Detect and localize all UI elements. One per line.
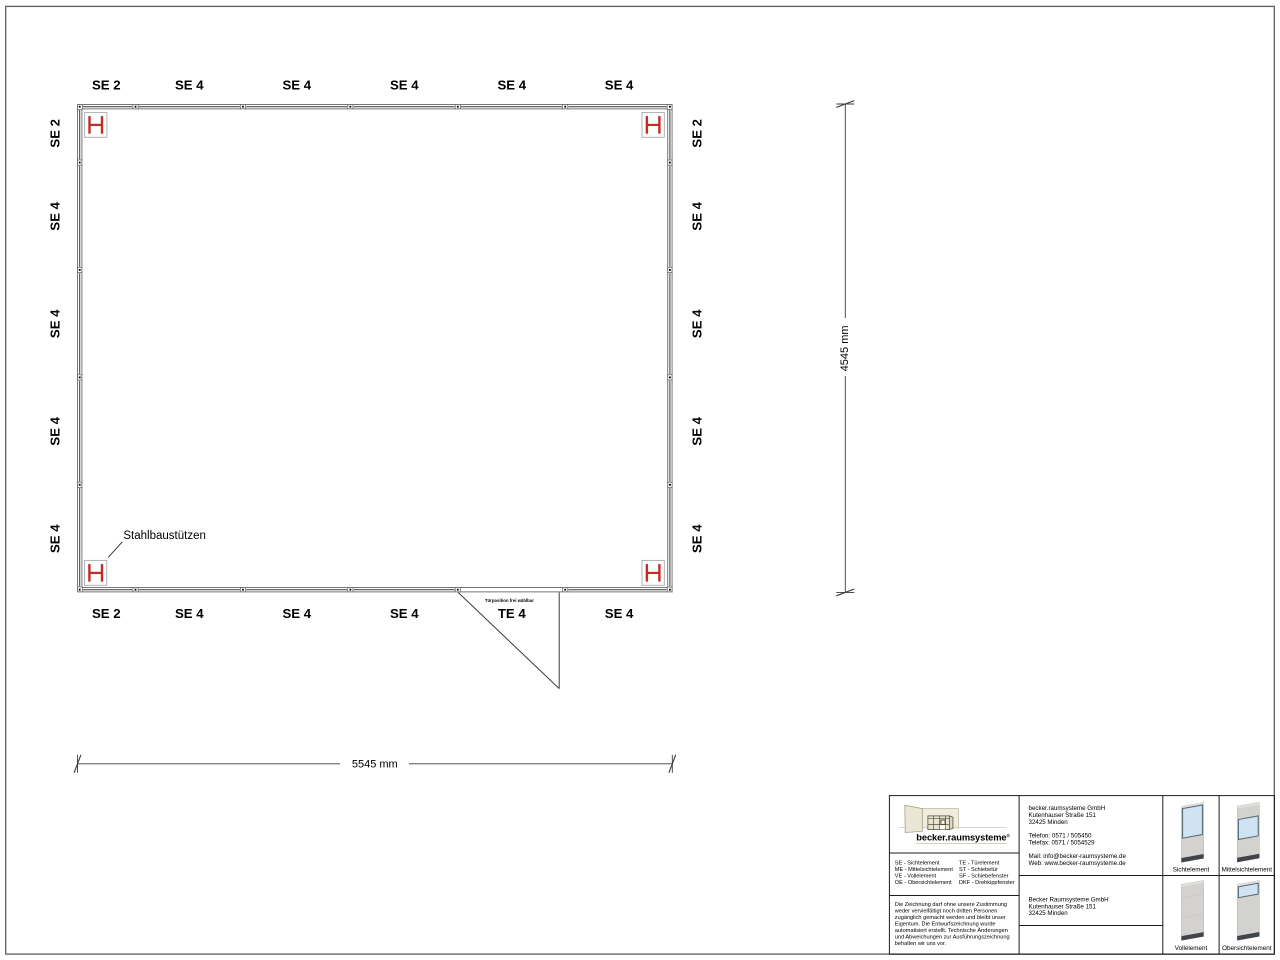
svg-text:SE 4: SE 4: [48, 309, 63, 338]
svg-text:SE 4: SE 4: [283, 78, 312, 93]
svg-text:ME - Mittelsichtelement: ME - Mittelsichtelement: [895, 867, 954, 873]
svg-text:SE 4: SE 4: [283, 606, 312, 621]
svg-text:SE 4: SE 4: [48, 524, 63, 553]
svg-text:Eigentum. Die Entwurfszeichnun: Eigentum. Die Entwurfszeichnung wurde: [895, 921, 996, 927]
svg-text:SE 4: SE 4: [690, 309, 705, 338]
svg-text:Türposition frei wählbar: Türposition frei wählbar: [485, 598, 534, 603]
svg-text:Mittelsichtelement: Mittelsichtelement: [1222, 866, 1273, 873]
svg-text:Stahlbaustützen: Stahlbaustützen: [123, 530, 205, 542]
svg-text:SE - Sichtelement: SE - Sichtelement: [895, 861, 940, 867]
svg-text:SE 2: SE 2: [48, 119, 63, 148]
svg-text:SE 4: SE 4: [690, 201, 705, 230]
svg-text:behalten wir uns vor.: behalten wir uns vor.: [895, 941, 947, 947]
svg-text:SE 4: SE 4: [690, 524, 705, 553]
svg-text:OE - Obersichtelement: OE - Obersichtelement: [895, 880, 952, 886]
svg-text:Die Zeichnung darf ohne unsere: Die Zeichnung darf ohne unsere Zustimmun…: [895, 902, 1007, 908]
svg-text:ST - Schiebetür: ST - Schiebetür: [959, 867, 998, 873]
svg-text:SE 4: SE 4: [175, 78, 204, 93]
svg-text:TE - Türelement: TE - Türelement: [959, 861, 1000, 867]
svg-text:Sichtelement: Sichtelement: [1173, 866, 1210, 873]
svg-text:SF - Schiebefenster: SF - Schiebefenster: [959, 874, 1009, 880]
svg-text:SE 2: SE 2: [92, 78, 121, 93]
svg-text:SE 4: SE 4: [605, 606, 634, 621]
svg-text:automatisiert erstellt. Techni: automatisiert erstellt. Technische Änder…: [895, 927, 1008, 934]
svg-text:32425 Minden: 32425 Minden: [1029, 910, 1069, 917]
svg-text:becker.raumsysteme®: becker.raumsysteme®: [916, 832, 1010, 842]
svg-text:Vollelement: Vollelement: [1175, 945, 1208, 952]
svg-text:und Abweichungen zur Ausführun: und Abweichungen zur Ausführungszeichnun…: [895, 934, 1010, 940]
svg-text:SE 4: SE 4: [390, 78, 419, 93]
svg-text:zugänglich gemacht werden und: zugänglich gemacht werden und bleibt uns…: [895, 915, 1006, 921]
svg-text:SE 4: SE 4: [48, 416, 63, 445]
svg-text:SE 4: SE 4: [48, 201, 63, 230]
svg-text:32425 Minden: 32425 Minden: [1029, 819, 1069, 826]
svg-text:SE 4: SE 4: [390, 606, 419, 621]
svg-text:5545 mm: 5545 mm: [352, 759, 398, 771]
svg-text:DKF - Drehkippfenster: DKF - Drehkippfenster: [959, 880, 1015, 886]
svg-text:SE 2: SE 2: [92, 606, 121, 621]
svg-text:Web: www.becker-raumsysteme.de: Web: www.becker-raumsysteme.de: [1029, 860, 1127, 867]
svg-text:SE 4: SE 4: [175, 606, 204, 621]
svg-text:Obersichtelement: Obersichtelement: [1222, 945, 1272, 952]
svg-text:SE 4: SE 4: [690, 416, 705, 445]
svg-text:4545 mm: 4545 mm: [839, 325, 851, 371]
svg-text:TE 4: TE 4: [498, 606, 527, 621]
svg-text:weder vervielfältigt noch drit: weder vervielfältigt noch dritten Person…: [894, 908, 998, 914]
svg-text:VE - Vollelement: VE - Vollelement: [895, 874, 937, 880]
svg-text:SE 4: SE 4: [498, 78, 527, 93]
svg-text:SE 2: SE 2: [690, 119, 705, 148]
svg-text:Telefax: 0571 / 5054529: Telefax: 0571 / 5054529: [1029, 839, 1096, 846]
svg-text:SE 4: SE 4: [605, 78, 634, 93]
